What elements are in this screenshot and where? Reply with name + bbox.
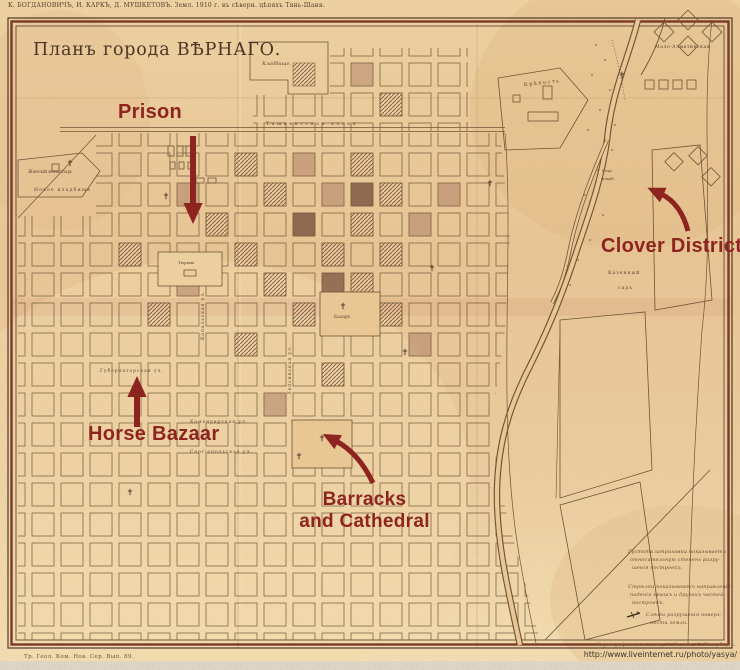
cartographer-credit: Картографическое завед. А. Ильина, С.-Пе… — [597, 642, 736, 648]
annotation-clover-district: Clover District — [601, 236, 740, 256]
label-convent: Женскій монастырь — [28, 169, 73, 174]
label-state-garden-1: Казенный — [608, 270, 640, 276]
annotation-barracks-line2: and Cathedral — [292, 511, 437, 533]
label-cemetery: Кладбище. — [261, 60, 291, 67]
annotation-barracks-line1: Barracks — [292, 489, 437, 511]
label-bazaar: Базаръ — [334, 315, 351, 320]
label-prison-block: Тюрьма — [178, 260, 195, 265]
legend-line-5: паденія крышъ и другихъ частей — [630, 593, 723, 598]
label-old-cemetery-1: Стар. — [602, 168, 613, 173]
annotation-prison: Prison — [118, 102, 182, 122]
prison-block — [158, 252, 222, 286]
legend-line-1: Густота штриховки показываетъ — [628, 550, 726, 555]
label-gubernatorskaya: Губернаторская ул. — [100, 369, 164, 374]
legend-line-7: Слѣды разрушенія поверх- — [646, 613, 722, 618]
label-new-cemetery: Новое кладбище — [34, 186, 91, 193]
legend-line-8: ности земли. — [650, 621, 688, 626]
source-url: http://www.liveinternet.ru/photo/yasya/ — [584, 650, 737, 659]
label-malo-almatinskaya: Мало-Алматинская — [655, 44, 710, 50]
map-title: Планъ города ВѢРНАГО. — [33, 40, 281, 60]
legend-line-4: Стрѣлки показываютъ направленіе — [628, 585, 731, 590]
annotation-barracks-cathedral: Barracks and Cathedral — [292, 489, 437, 533]
publication-caption: К. БОГДАНОВИЧЪ, И. КАРКЪ, Д. МУШКЕТОВЪ. … — [8, 2, 325, 9]
label-tashkent-alley: Ташкентская аллея — [266, 121, 358, 127]
series-caption: Тр. Геол. Ком. Нов. Сер. Вып. 89. — [24, 654, 134, 660]
legend-line-6: построекъ. — [632, 601, 664, 606]
map-canvas: Кладбище. Крѣпость Женскій монастырь Нов… — [0, 0, 740, 670]
label-kopalskaya: Копальская ул. — [201, 290, 206, 340]
label-old-cemetery-2: кладб. — [602, 176, 615, 181]
label-state-garden-2: садъ — [618, 286, 633, 291]
annotation-horse-bazaar: Horse Bazaar — [88, 424, 219, 444]
ground-rupture-symbol — [626, 610, 644, 619]
label-lepsinskaya: Лепсинская ул. — [288, 345, 293, 395]
legend-line-2: относительную степень разру- — [630, 558, 721, 563]
legend-line-3: шенія построекъ. — [632, 566, 682, 571]
antique-city-map: Кладбище. Крѣпость Женскій монастырь Нов… — [0, 0, 740, 670]
city-street-grid — [18, 48, 540, 640]
scan-edge-strip — [0, 661, 740, 670]
label-sergiopolskaya: Сергіопольская ул. — [190, 450, 253, 455]
